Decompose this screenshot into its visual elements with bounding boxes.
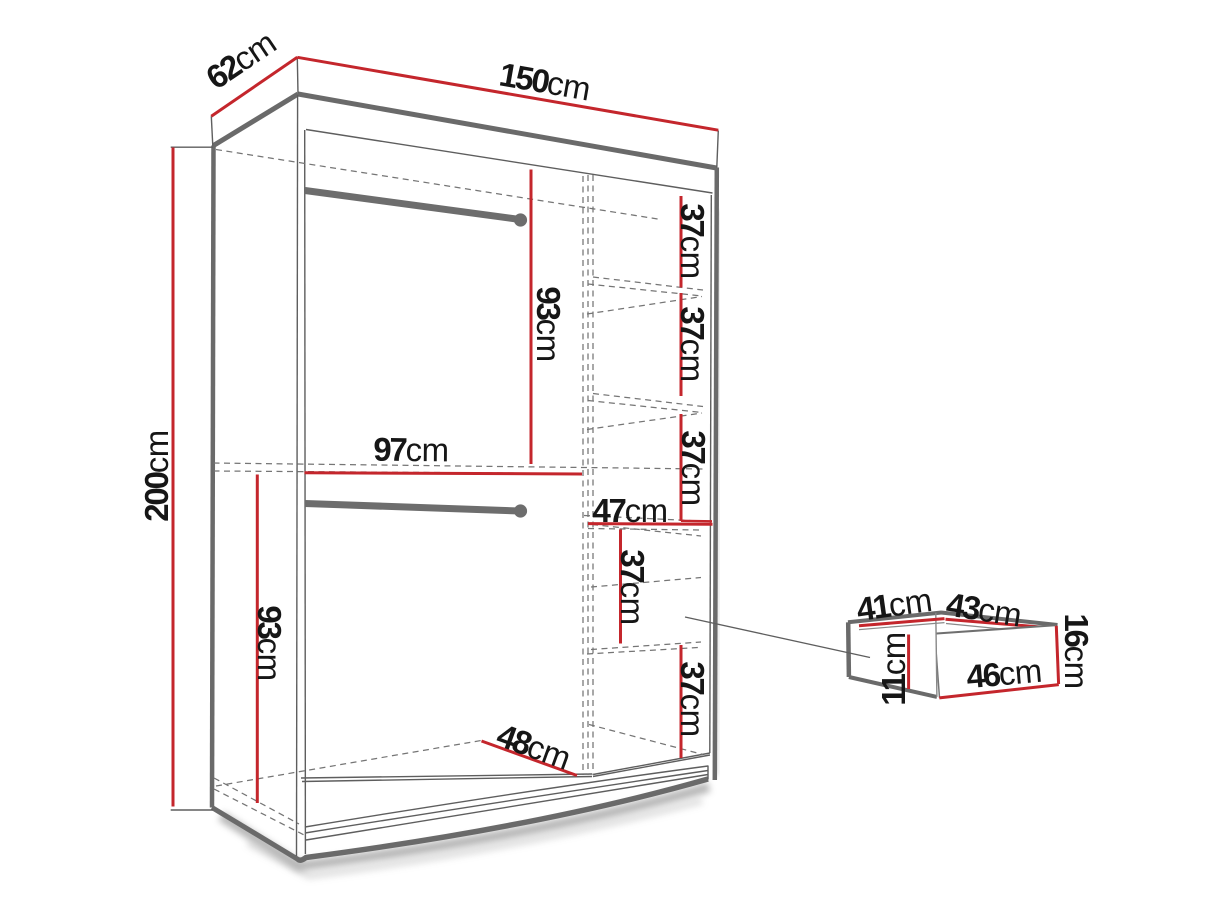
svg-text:11cm: 11cm: [875, 632, 912, 706]
svg-text:37cm: 37cm: [676, 430, 713, 505]
svg-text:93cm: 93cm: [252, 605, 289, 680]
svg-text:37cm: 37cm: [675, 203, 712, 278]
svg-text:16cm: 16cm: [1059, 613, 1096, 688]
svg-text:37cm: 37cm: [675, 306, 712, 381]
svg-text:37cm: 37cm: [615, 549, 652, 624]
svg-text:46cm: 46cm: [965, 651, 1043, 694]
svg-text:47cm: 47cm: [592, 492, 667, 529]
svg-text:200cm: 200cm: [138, 430, 175, 521]
svg-text:37cm: 37cm: [675, 661, 712, 736]
svg-text:93cm: 93cm: [531, 286, 568, 361]
svg-text:97cm: 97cm: [373, 430, 449, 468]
